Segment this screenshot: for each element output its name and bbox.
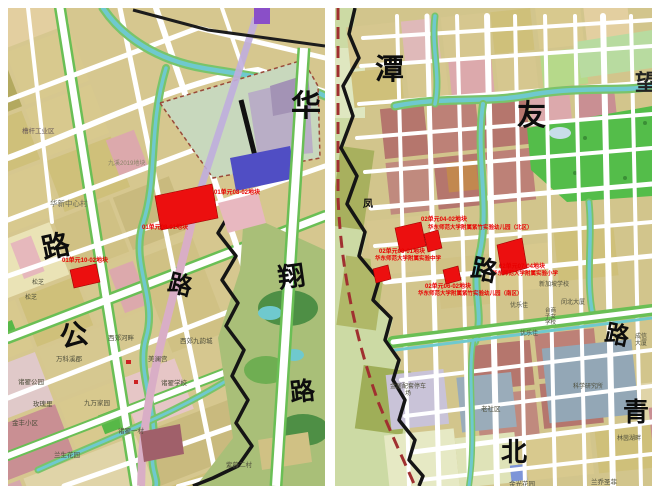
- road-char-lu-east-r: 路: [603, 322, 631, 350]
- area-label-ziwei: 紫薇二村: [226, 462, 252, 469]
- road-char-lu-west: 路: [39, 231, 72, 264]
- road-char-lu-east: 路: [289, 379, 316, 406]
- area-label-songzhi-b: 松芝: [25, 295, 37, 302]
- area-label-youlejia-b: 优乐佳: [520, 331, 538, 338]
- area-label-xijiao-riverside: 西郊河畔: [108, 335, 134, 342]
- road-char-you: 友: [517, 102, 546, 131]
- right-map-panel: 02单元04-02地块 华东师范大学附属紫竹实验幼儿园（北区） 02单元03-0…: [335, 8, 652, 486]
- area-label-minbei-tower: 闵北大厦: [561, 300, 585, 307]
- area-label-jinfeng: 金丰小区: [12, 420, 38, 427]
- plot-label-02-06-02: 02单元06-02地块: [425, 284, 471, 290]
- road-char-qing: 青: [623, 400, 649, 426]
- area-label-zhuzhai-park: 诸翟公园: [18, 379, 44, 386]
- area-label-meilan: 美澜宫: [148, 356, 168, 363]
- plot-name-02-06-02: 华东师范大学附属紫竹实验幼儿园（南区）: [418, 292, 523, 298]
- plot-label-02-07-04: 02单元07-04地块: [499, 264, 545, 270]
- road-char-feng: 凤: [363, 200, 373, 210]
- road-char-hua: 华: [291, 92, 321, 122]
- area-label-parking-lot: 金居配套停车场: [390, 384, 426, 397]
- area-label-lanqiao-shengfei: 兰乔圣菲: [591, 479, 617, 486]
- area-label-jinguang-garden: 金光花园: [509, 481, 535, 486]
- plot-label-01-08-02: 01单元08-02地块: [214, 190, 260, 196]
- plot-name-02-07-04: 华东师范大学附属实验小学: [492, 272, 558, 278]
- area-label-youlejia-a: 优乐佳: [510, 303, 528, 310]
- plot-label-02-03-01: 02单元03-01地块: [379, 249, 425, 255]
- road-char-tan: 潭: [375, 56, 404, 85]
- road-char-wang: 望: [635, 72, 652, 94]
- area-label-songzhi-a: 松芝: [32, 280, 44, 287]
- area-label-wanke: 万科溪郡: [56, 356, 82, 363]
- plot-label-01-08-01: 01单元08-01地块: [142, 225, 188, 231]
- area-label-research-institute: 科学研究所: [573, 384, 603, 391]
- area-label-zhuzhai-village: 诸翟一村: [118, 428, 144, 435]
- area-label-meigui: 玫瑰里: [33, 401, 53, 408]
- area-label-chengxin-tower: 成信大厦: [635, 334, 649, 347]
- area-label-jiuxi-plot: 九溪2019地块: [108, 161, 145, 168]
- area-label-xijiao-city: 西郊九韵城: [180, 338, 213, 345]
- plot-name-02-03-01: 华东师范大学附属实验中学: [375, 257, 441, 263]
- road-char-lu-center: 路: [469, 256, 500, 287]
- area-label-singapore-school: 新加坡学校: [539, 282, 569, 289]
- area-label-taishang-school: 台商子女学校: [545, 308, 561, 326]
- area-label-industrial-zone: 槽杆工业区: [22, 128, 55, 135]
- area-label-jiuwan: 九万家园: [84, 400, 110, 407]
- plot-label-02-04-02: 02单元04-02地块: [421, 217, 467, 223]
- road-char-bei: 北: [501, 440, 527, 466]
- road-char-gong: 公: [57, 320, 90, 353]
- area-label-lansheng-garden: 兰生花园: [54, 452, 80, 459]
- plot-name-02-04-02: 华东师范大学附属紫竹实验幼儿园（北区）: [428, 226, 533, 232]
- area-label-zhuzhai-school: 诸翟学校: [161, 380, 187, 387]
- left-map-panel: 01单元08-02地块 01单元08-01地块 01单元10-02地块 槽杆工业…: [8, 8, 325, 486]
- area-label-huaxin-village: 华新中心村: [50, 200, 88, 208]
- area-label-linyin-lakeside: 林茵湖畔: [617, 436, 641, 443]
- road-char-xiang: 翔: [276, 262, 306, 292]
- area-label-old-community: 老社区: [481, 406, 501, 413]
- planning-map-screenshot: 01单元08-02地块 01单元08-01地块 01单元10-02地块 槽杆工业…: [0, 0, 660, 494]
